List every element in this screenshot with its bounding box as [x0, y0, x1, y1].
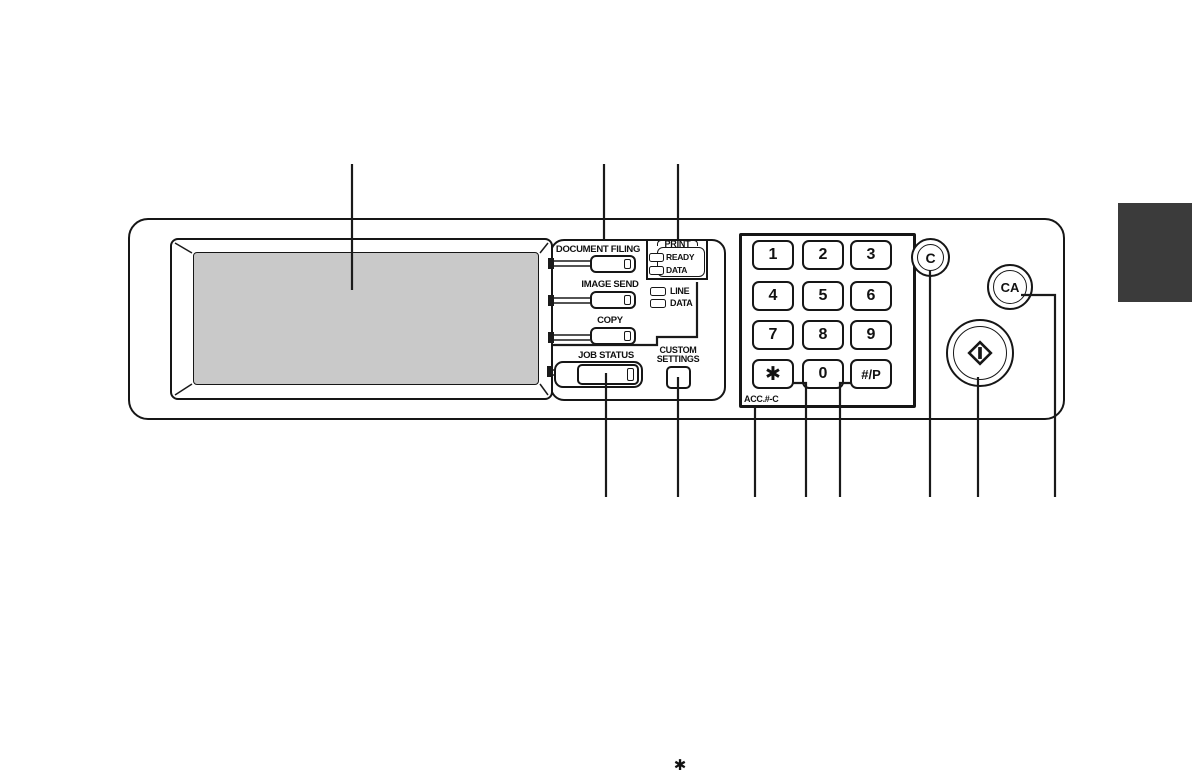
document-filing-key-indicator — [624, 259, 631, 269]
print-bracket-right-icon — [693, 240, 698, 246]
start-key — [946, 319, 1014, 387]
data-label: DATA — [670, 299, 702, 308]
touch-panel-screen — [193, 252, 539, 385]
print-ready-label: READY — [666, 253, 704, 262]
image-send-label: IMAGE SEND — [560, 280, 660, 290]
image-send-key — [590, 291, 636, 309]
clear-key: C — [911, 238, 950, 277]
print-data-label: DATA — [666, 266, 704, 275]
start-key-face — [953, 326, 1007, 380]
keypad-key-5: 5 — [802, 281, 844, 311]
keypad-key-hash-p: #/P — [850, 359, 892, 389]
keypad-key-7: 7 — [752, 320, 794, 350]
print-bracket-left-icon — [657, 240, 662, 246]
print-title: PRINT — [650, 240, 705, 249]
data-led — [650, 299, 666, 308]
document-filing-key — [590, 255, 636, 273]
footnote-asterisk: ✱ — [668, 756, 692, 776]
keypad-key-9: 9 — [850, 320, 892, 350]
keypad-key-8: 8 — [802, 320, 844, 350]
print-ready-led — [649, 253, 664, 262]
image-send-key-indicator — [624, 295, 631, 305]
keypad-key-star: ✱ — [752, 359, 794, 389]
manual-page: DOCUMENT FILING IMAGE SEND COPY JOB STAT… — [0, 0, 1192, 781]
start-diamond-icon — [967, 340, 993, 366]
clear-all-key: CA — [987, 264, 1033, 310]
job-status-key — [577, 364, 639, 385]
page-edge-tab — [1118, 203, 1192, 302]
custom-settings-label-line2: SETTINGS — [648, 354, 708, 364]
document-filing-label: DOCUMENT FILING — [548, 245, 648, 255]
keypad-key-4: 4 — [752, 281, 794, 311]
custom-settings-key — [666, 366, 691, 389]
clear-key-letter: C — [917, 244, 944, 271]
keypad-key-1: 1 — [752, 240, 794, 270]
print-data-led — [649, 266, 664, 275]
keypad-key-2: 2 — [802, 240, 844, 270]
job-status-key-indicator — [627, 368, 634, 381]
keypad-key-3: 3 — [850, 240, 892, 270]
job-status-label: JOB STATUS — [556, 351, 656, 361]
keypad-key-0: 0 — [802, 359, 844, 389]
print-title-text: PRINT — [664, 240, 690, 249]
copy-label: COPY — [560, 316, 660, 326]
line-label: LINE — [670, 287, 702, 296]
copy-key — [590, 327, 636, 345]
clear-all-key-letters: CA — [993, 270, 1027, 304]
line-led — [650, 287, 666, 296]
acc-number-clear-label: ACC.#-C — [744, 395, 802, 404]
copy-key-indicator — [624, 331, 631, 341]
keypad-key-6: 6 — [850, 281, 892, 311]
